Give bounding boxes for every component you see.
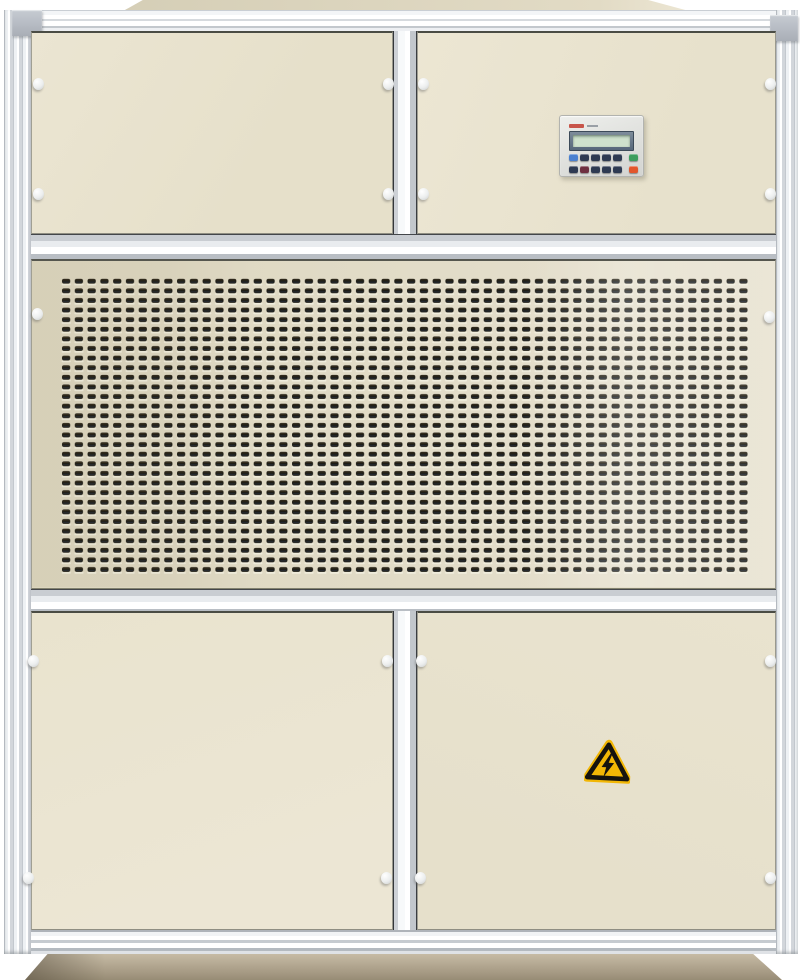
keypad-button[interactable] — [591, 154, 600, 161]
panel-fastener-knob[interactable] — [33, 188, 44, 200]
access-panel-top-right — [417, 31, 776, 234]
frame-mullion-top — [393, 31, 417, 234]
high-voltage-warning-icon — [584, 737, 632, 787]
frame-mid-rail-lower — [31, 589, 776, 611]
brand-mark — [569, 124, 584, 128]
frame-mullion-bottom — [393, 611, 417, 930]
keypad-button[interactable] — [580, 166, 589, 173]
cabinet-photo — [0, 0, 800, 980]
frame-bottom-rail — [31, 930, 776, 954]
keypad-button[interactable] — [602, 154, 611, 161]
keypad-button[interactable] — [569, 166, 578, 173]
keypad-button[interactable] — [629, 154, 638, 161]
intake-grille-panel — [31, 259, 776, 589]
control-panel[interactable] — [559, 115, 644, 177]
panel-fastener-knob[interactable] — [23, 872, 34, 884]
panel-fastener-knob[interactable] — [765, 872, 776, 884]
keypad-button[interactable] — [580, 154, 589, 161]
panel-fastener-knob[interactable] — [32, 308, 43, 320]
panel-fastener-knob[interactable] — [415, 872, 426, 884]
access-panel-bottom-right — [417, 611, 776, 930]
keypad-button[interactable] — [629, 166, 638, 173]
panel-fastener-knob[interactable] — [764, 311, 775, 323]
frame-mid-rail-upper — [31, 234, 776, 259]
access-panel-top-left — [31, 31, 393, 234]
panel-fastener-knob[interactable] — [381, 872, 392, 884]
frame-left-column — [4, 10, 31, 954]
panel-fastener-knob[interactable] — [418, 78, 429, 90]
keypad-button[interactable] — [569, 154, 578, 161]
brand-mark-subtext — [587, 125, 598, 127]
lcd-display — [569, 131, 634, 151]
panel-fastener-knob[interactable] — [765, 78, 776, 90]
base-plinth-shadow — [25, 954, 105, 980]
panel-fastener-knob[interactable] — [33, 78, 44, 90]
panel-fastener-knob[interactable] — [765, 188, 776, 200]
keypad-button[interactable] — [602, 166, 611, 173]
panel-fastener-knob[interactable] — [418, 188, 429, 200]
frame-top-rail — [4, 10, 798, 31]
keypad-button[interactable] — [591, 166, 600, 173]
access-panel-bottom-left — [31, 611, 393, 930]
panel-fastener-knob[interactable] — [28, 655, 39, 667]
grille-perforations — [60, 277, 750, 575]
panel-fastener-knob[interactable] — [383, 78, 394, 90]
keypad-button[interactable] — [613, 154, 622, 161]
keypad — [569, 154, 639, 175]
panel-fastener-knob[interactable] — [765, 655, 776, 667]
panel-fastener-knob[interactable] — [416, 655, 427, 667]
panel-fastener-knob[interactable] — [382, 655, 393, 667]
base-plinth — [25, 954, 782, 980]
keypad-button[interactable] — [613, 166, 622, 173]
frame-right-column — [776, 10, 798, 954]
lcd-screen — [573, 135, 630, 147]
panel-fastener-knob[interactable] — [383, 188, 394, 200]
